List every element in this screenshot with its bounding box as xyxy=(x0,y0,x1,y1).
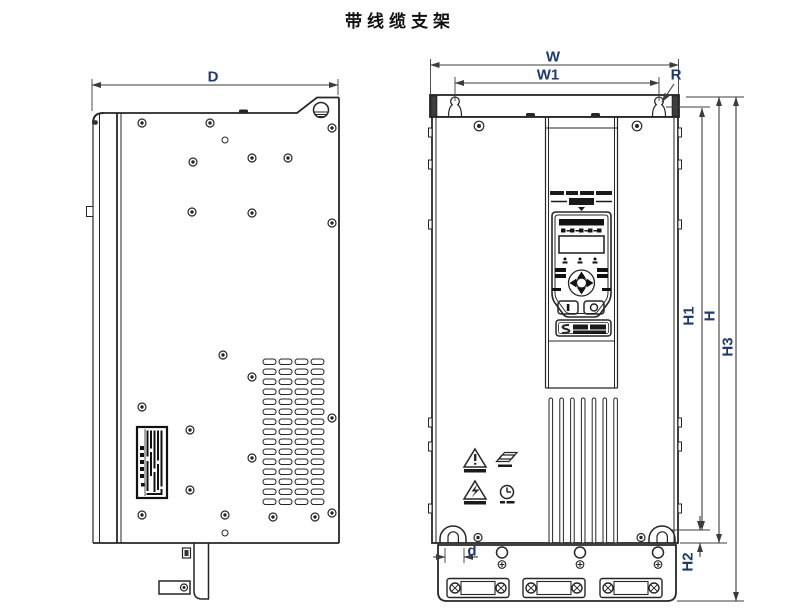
dim-label-hole-d: d xyxy=(467,544,476,559)
side-view xyxy=(87,98,340,600)
brand-badge xyxy=(556,320,611,336)
dim-label-height1: H1 xyxy=(682,306,697,325)
front-body xyxy=(429,117,682,543)
dim-label-height2: H2 xyxy=(681,552,696,571)
cable-clamp-1 xyxy=(447,579,509,598)
keypad-display xyxy=(559,236,604,253)
dim-label-height3: H3 xyxy=(721,337,736,356)
dim-label-height: H xyxy=(703,311,718,322)
nameplate-label xyxy=(137,427,167,498)
dim-label-width1: W1 xyxy=(537,68,560,83)
front-view xyxy=(429,95,682,601)
keypad-brand-bar xyxy=(559,219,604,226)
back-plate xyxy=(87,113,105,543)
drawing-canvas: 带线缆支架 xyxy=(0,0,800,615)
cable-clamp-3 xyxy=(600,579,662,598)
dim-label-radius: R xyxy=(671,68,682,83)
front-top-plate xyxy=(430,95,679,117)
lifting-hole xyxy=(314,103,329,118)
dim-label-width: W xyxy=(546,50,560,65)
cable-clamp-2 xyxy=(523,579,585,598)
side-vent-grille xyxy=(262,357,326,507)
dim-label-depth: D xyxy=(208,70,219,85)
side-cable-bracket xyxy=(159,543,209,599)
